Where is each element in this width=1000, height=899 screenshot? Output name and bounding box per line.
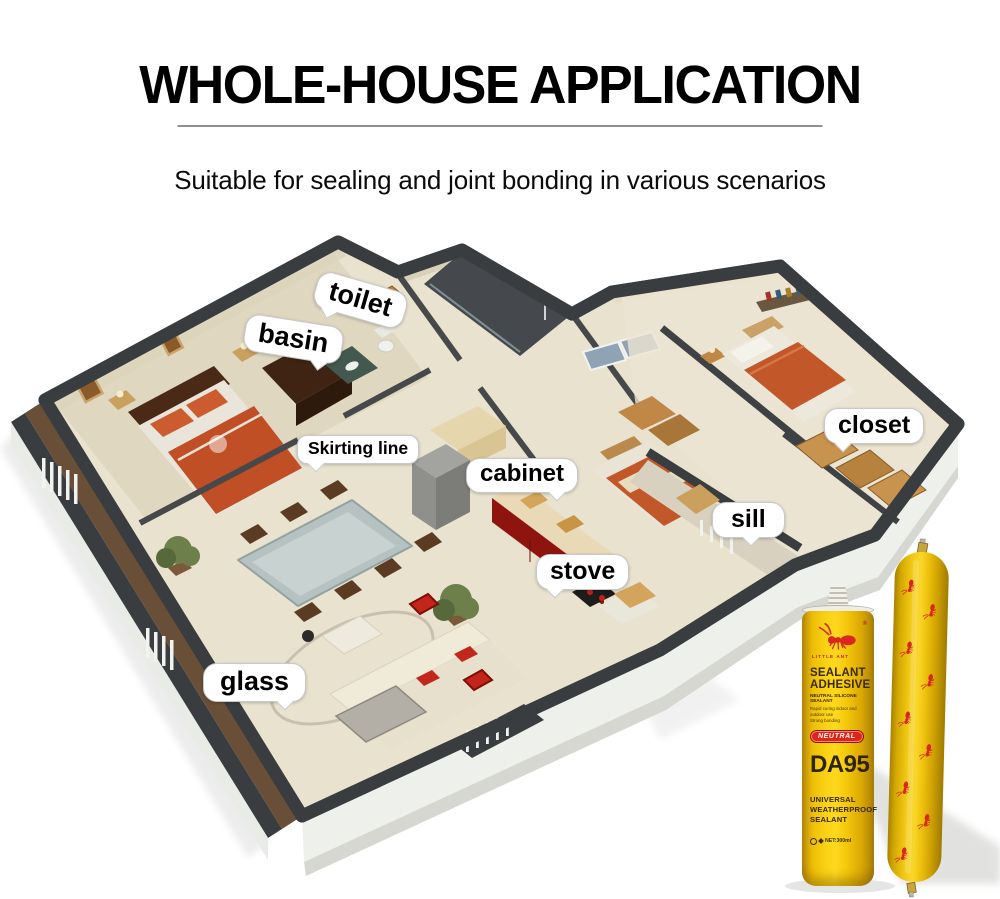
sausage-body — [886, 538, 949, 897]
net-weight: NET:300ml — [825, 838, 851, 844]
ant-logo-icon — [811, 621, 865, 651]
product-title-line1: SEALANT — [810, 667, 868, 679]
sealant-cartridge: ® LITTLE ANT SEALANT ADHESIVE NEUTRAL SI… — [802, 584, 874, 886]
type-line: SEALANT — [810, 815, 868, 825]
callout-closet-label: closet — [838, 411, 910, 439]
certification-icon — [810, 838, 817, 845]
page: WHOLE-HOUSE APPLICATION Suitable for sea… — [0, 0, 1000, 899]
callout-glass: glass — [203, 663, 306, 702]
callout-closet: closet — [824, 408, 924, 444]
callout-sill: sill — [712, 502, 785, 538]
net-weight-line: NET:300ml — [810, 838, 868, 845]
product-type: UNIVERSAL WEATHERPROOF SEALANT — [810, 795, 868, 825]
recycle-icon — [818, 838, 824, 844]
callout-sill-label: sill — [731, 505, 766, 533]
callout-skirting-line-label: Skirting line — [308, 438, 408, 458]
callout-basin-label: basin — [256, 318, 330, 359]
description-line: Strong bonding — [810, 718, 868, 724]
cartridge-label: ® LITTLE ANT SEALANT ADHESIVE NEUTRAL SI… — [810, 621, 868, 845]
sealant-sausage-pack — [882, 538, 958, 899]
neutral-badge: NEUTRAL — [810, 730, 864, 743]
callout-stove: stove — [536, 554, 629, 590]
callout-skirting-line: Skirting line — [297, 435, 419, 464]
product-title-line2: ADHESIVE — [810, 679, 868, 691]
brand-logo: ® — [811, 621, 865, 653]
type-line: UNIVERSAL — [810, 795, 868, 805]
callout-glass-label: glass — [220, 666, 289, 696]
registered-mark: ® — [863, 621, 867, 627]
product-subtitle: NEUTRAL SILICONE SEALANT — [810, 694, 868, 704]
callout-stove-label: stove — [550, 557, 615, 585]
type-line: WEATHERPROOF — [810, 805, 868, 815]
cartridge-body: ® LITTLE ANT SEALANT ADHESIVE NEUTRAL SI… — [802, 611, 874, 886]
product-description: Rapid curing indoor and outdoor use Stro… — [810, 706, 868, 724]
model-number: DA95 — [810, 751, 868, 779]
brand-name: LITTLE ANT — [812, 654, 868, 659]
sausage-bottom-crimp — [907, 882, 917, 897]
callout-cabinet: cabinet — [466, 458, 578, 493]
callout-cabinet-label: cabinet — [480, 460, 564, 487]
